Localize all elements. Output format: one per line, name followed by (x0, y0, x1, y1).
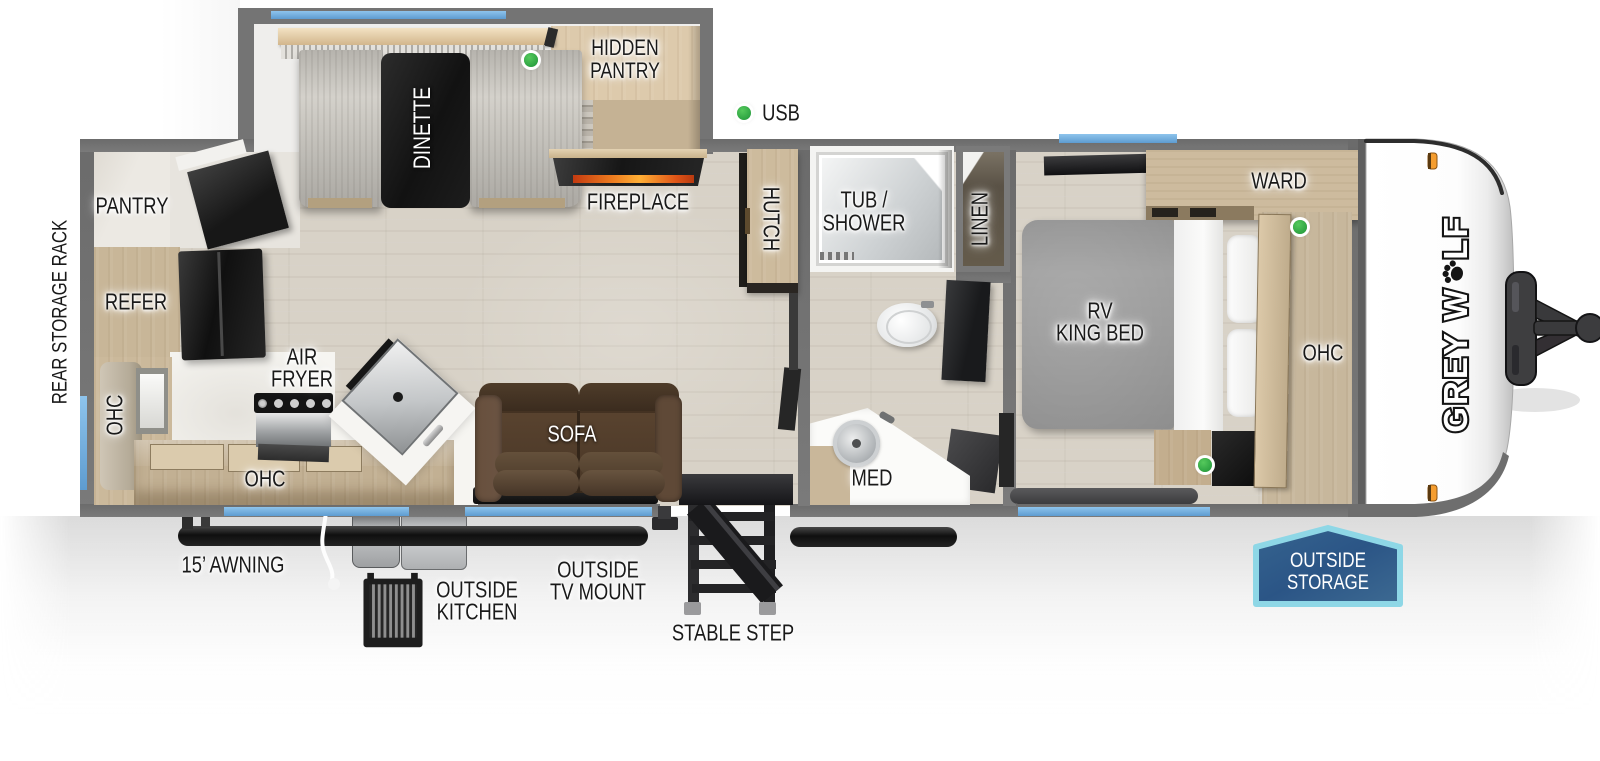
svg-text:GREY WOLF: GREY WOLF (1437, 215, 1474, 432)
